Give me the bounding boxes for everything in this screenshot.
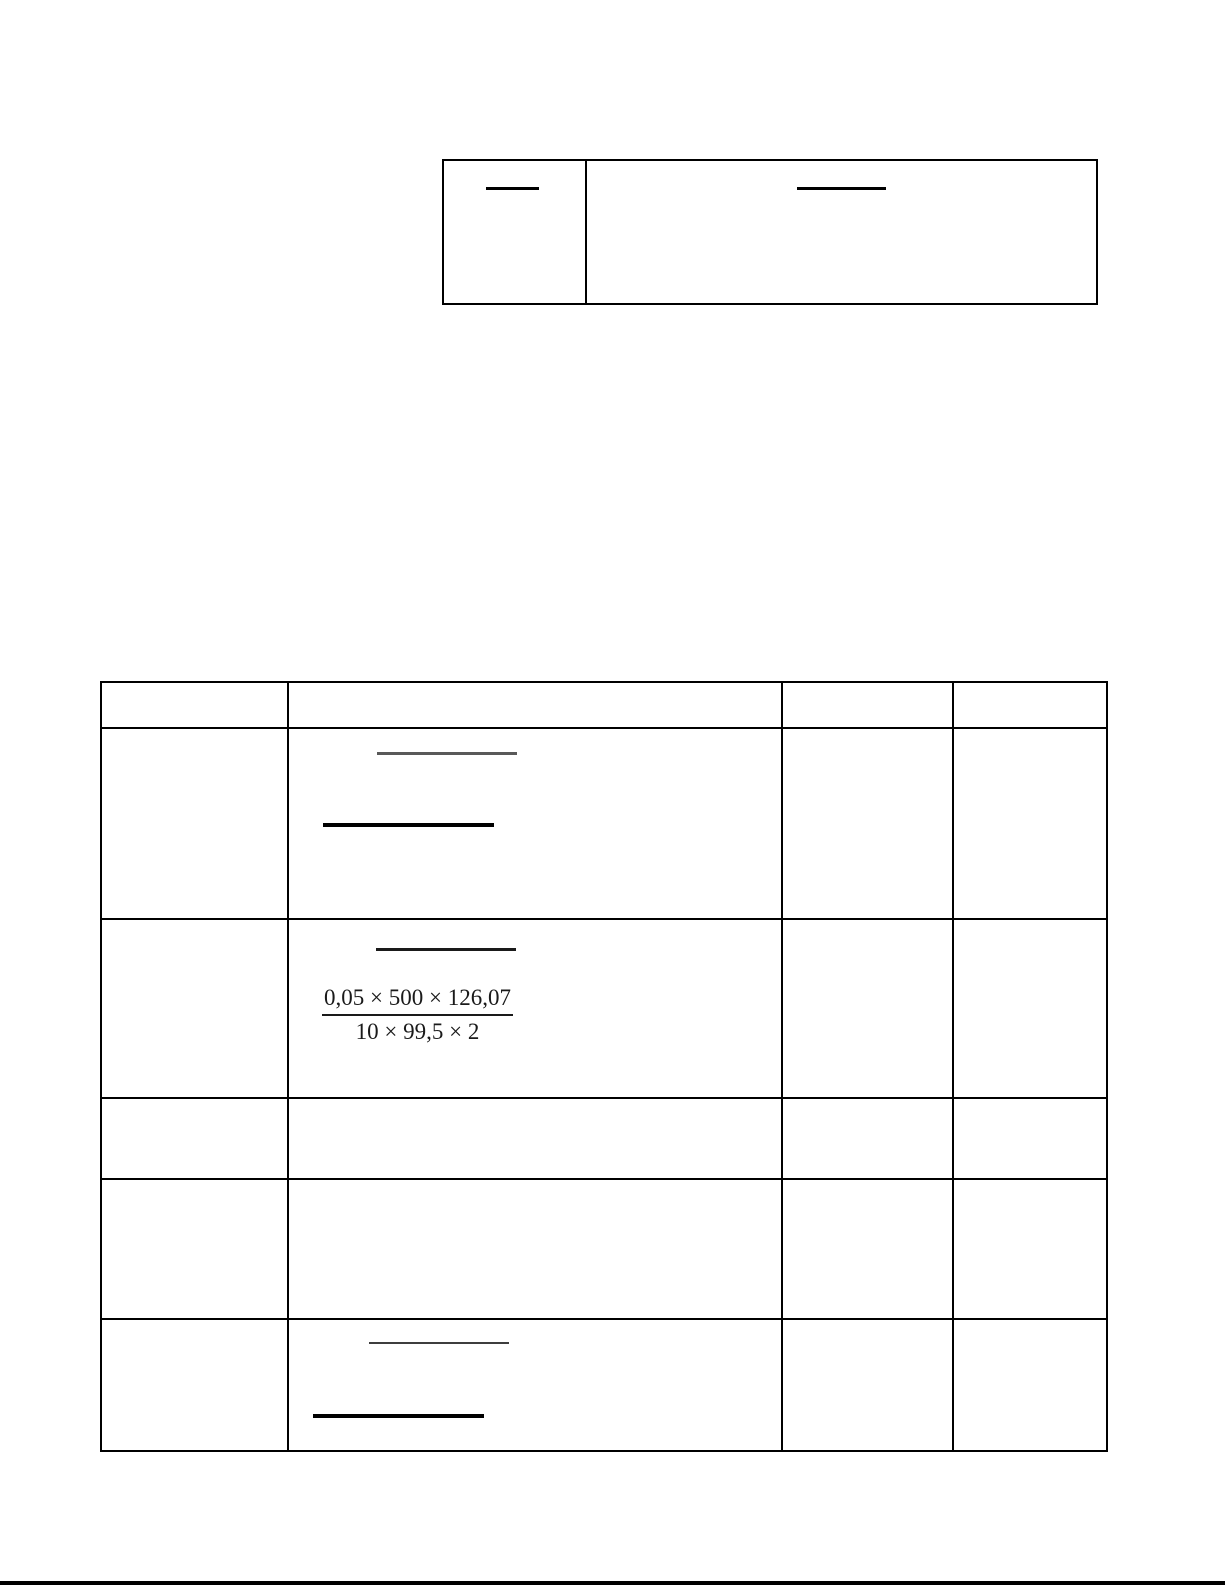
row3-cell-4 — [953, 1098, 1107, 1179]
row3-cell-1 — [101, 1098, 288, 1179]
row4-cell-4 — [953, 1179, 1107, 1319]
table-row — [101, 1319, 1107, 1451]
row5-cell-1 — [101, 1319, 288, 1451]
row4-cell-3 — [782, 1179, 953, 1319]
main-table: 0,05 × 500 × 126,07 10 × 99,5 × 2 — [100, 681, 1108, 1452]
row1-cell-2 — [288, 728, 782, 919]
fraction-bar — [486, 187, 539, 190]
fraction-bar-thin — [369, 1342, 509, 1344]
document-page: 0,05 × 500 × 126,07 10 × 99,5 × 2 — [0, 0, 1225, 1585]
top-table-cell-1 — [443, 160, 586, 304]
header-cell-4 — [953, 682, 1107, 728]
row2-cell-3 — [782, 919, 953, 1098]
fraction-bar-gray — [377, 752, 517, 755]
header-cell-2 — [288, 682, 782, 728]
table-row — [101, 1098, 1107, 1179]
row5-cell-2 — [288, 1319, 782, 1451]
row2-cell-4 — [953, 919, 1107, 1098]
row2-cell-2: 0,05 × 500 × 126,07 10 × 99,5 × 2 — [288, 919, 782, 1098]
fraction-numerator: 0,05 × 500 × 126,07 — [322, 984, 513, 1016]
fraction-denominator: 10 × 99,5 × 2 — [322, 1016, 513, 1046]
top-table-row — [443, 160, 1097, 304]
row5-cell-4 — [953, 1319, 1107, 1451]
row4-cell-2 — [288, 1179, 782, 1319]
row1-cell-4 — [953, 728, 1107, 919]
fraction-expression: 0,05 × 500 × 126,07 10 × 99,5 × 2 — [322, 984, 513, 1046]
header-cell-1 — [101, 682, 288, 728]
row1-cell-3 — [782, 728, 953, 919]
fraction-bar — [313, 1414, 484, 1418]
row5-cell-3 — [782, 1319, 953, 1451]
row4-cell-1 — [101, 1179, 288, 1319]
top-table — [442, 159, 1098, 305]
top-table-cell-2 — [586, 160, 1097, 304]
table-row: 0,05 × 500 × 126,07 10 × 99,5 × 2 — [101, 919, 1107, 1098]
row1-cell-1 — [101, 728, 288, 919]
row3-cell-3 — [782, 1098, 953, 1179]
row3-cell-2 — [288, 1098, 782, 1179]
page-bottom-bar — [0, 1581, 1225, 1585]
row2-cell-1 — [101, 919, 288, 1098]
fraction-bar — [797, 187, 886, 190]
table-header-row — [101, 682, 1107, 728]
table-row — [101, 1179, 1107, 1319]
fraction-bar — [323, 823, 494, 827]
table-row — [101, 728, 1107, 919]
fraction-bar — [376, 948, 516, 951]
header-cell-3 — [782, 682, 953, 728]
